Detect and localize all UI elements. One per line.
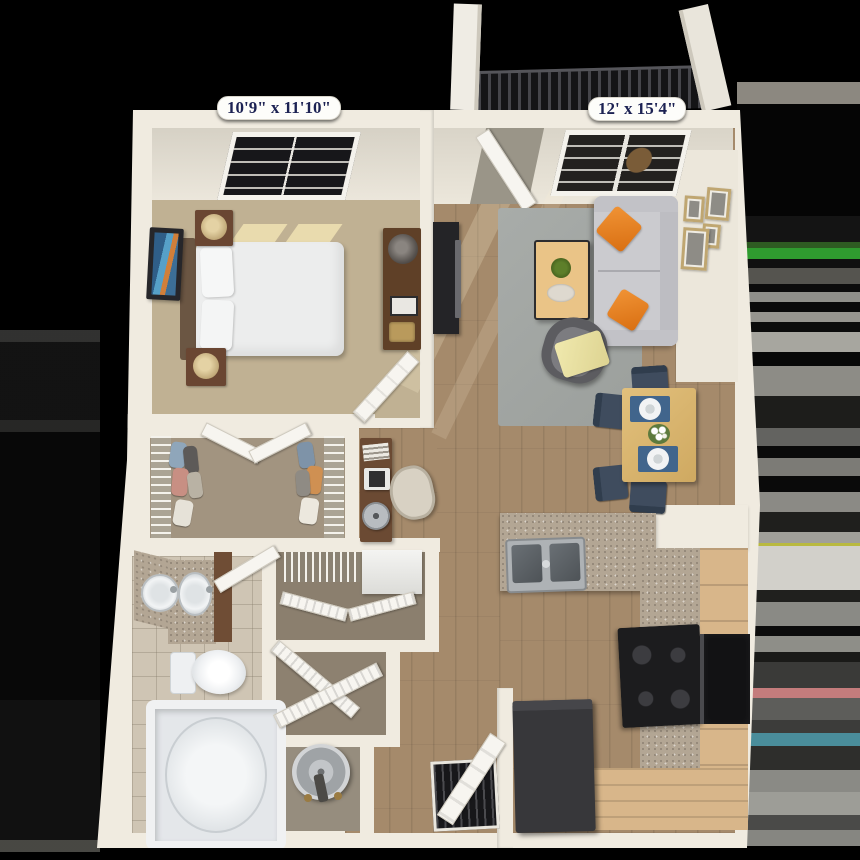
tv	[455, 240, 461, 318]
hanging-clothes	[295, 470, 311, 497]
refrigerator	[512, 699, 595, 833]
bathroom-sink-oval	[178, 572, 212, 616]
bedroom-window	[217, 132, 361, 200]
wall-kitchen-dining-stub	[652, 505, 748, 549]
desk-laptop	[364, 468, 390, 490]
living-room-dimension-text: 12' x 15'4"	[598, 99, 676, 118]
plate	[647, 448, 669, 470]
dresser-lamp	[388, 234, 418, 264]
water-heater-fitting	[334, 792, 342, 800]
dresser-items	[390, 296, 418, 316]
bed-pillow	[200, 299, 235, 351]
apartment-plan	[0, 0, 860, 860]
dining-chair	[629, 479, 667, 514]
sink-faucet	[170, 586, 177, 593]
closet-shelving-right	[324, 436, 344, 538]
living-window	[550, 130, 691, 196]
nightstand-lamp	[201, 214, 227, 240]
gallery-frame	[683, 195, 705, 222]
dresser-tray	[389, 322, 415, 342]
wall-bedroom-living	[420, 110, 434, 428]
wall-linen-right	[425, 538, 439, 652]
closet-shelving-left	[151, 436, 171, 538]
sink-faucet	[206, 586, 213, 593]
hanging-clothes	[298, 497, 319, 525]
coffee-table-tray	[547, 284, 575, 302]
living-room-dimension-label: 12' x 15'4"	[588, 97, 686, 121]
wall-bedroom-south	[127, 414, 375, 428]
vanity-cabinet	[214, 552, 232, 642]
plate	[639, 398, 661, 420]
flower-centerpiece	[648, 424, 670, 444]
bed-pillow	[200, 246, 235, 298]
kitchen-sink	[505, 537, 587, 594]
left-edge-artifact	[0, 0, 100, 860]
bathroom-sink-round	[141, 574, 179, 612]
linen-wire-shelf	[284, 552, 360, 582]
floor-plan-render: 10'9" x 11'10" 12' x 15'4"	[0, 0, 860, 860]
oven-door	[700, 634, 750, 724]
desk-papers	[362, 443, 390, 462]
stove	[617, 624, 704, 728]
gallery-frame	[681, 227, 710, 271]
stacked-appliance	[362, 550, 422, 594]
wall-storage-right	[386, 650, 400, 747]
bedroom-dimension-text: 10'9" x 11'10"	[227, 98, 331, 117]
water-heater-fitting	[304, 794, 312, 802]
balcony-post-left	[450, 4, 482, 111]
gallery-frame	[705, 187, 732, 221]
bedroom-dimension-label: 10'9" x 11'10"	[217, 96, 341, 120]
wall-closet-desk	[345, 428, 359, 552]
hanging-clothes	[171, 467, 189, 496]
desk-fan	[362, 502, 390, 530]
bathtub	[146, 700, 286, 850]
coffee-table	[534, 240, 590, 320]
kitchen-cabinets-bottom	[594, 768, 748, 830]
nightstand-lamp	[193, 353, 219, 379]
bedroom-wall-art	[146, 227, 184, 301]
coffee-table-plant	[551, 258, 571, 278]
wall-utility-right	[360, 747, 374, 848]
hanging-clothes	[296, 441, 315, 469]
